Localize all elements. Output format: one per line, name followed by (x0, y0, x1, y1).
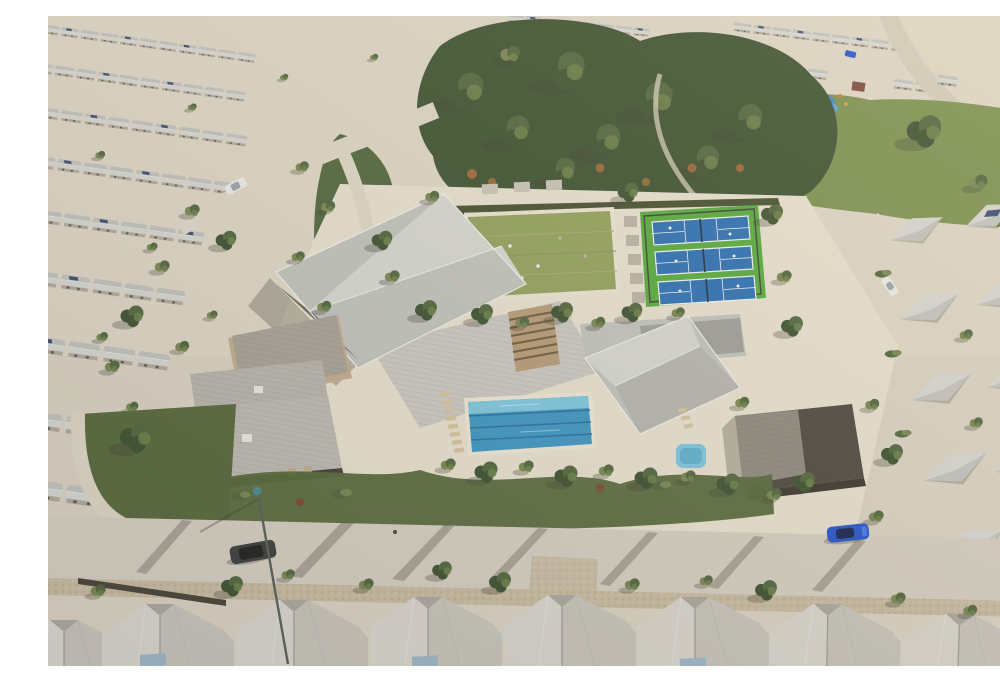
aerial-render-canvas (40, 16, 1000, 666)
aerial-render: Oblique aerial render of a masterplanned… (40, 16, 1000, 666)
light-overlay (40, 16, 1000, 666)
left-margin (40, 16, 48, 666)
